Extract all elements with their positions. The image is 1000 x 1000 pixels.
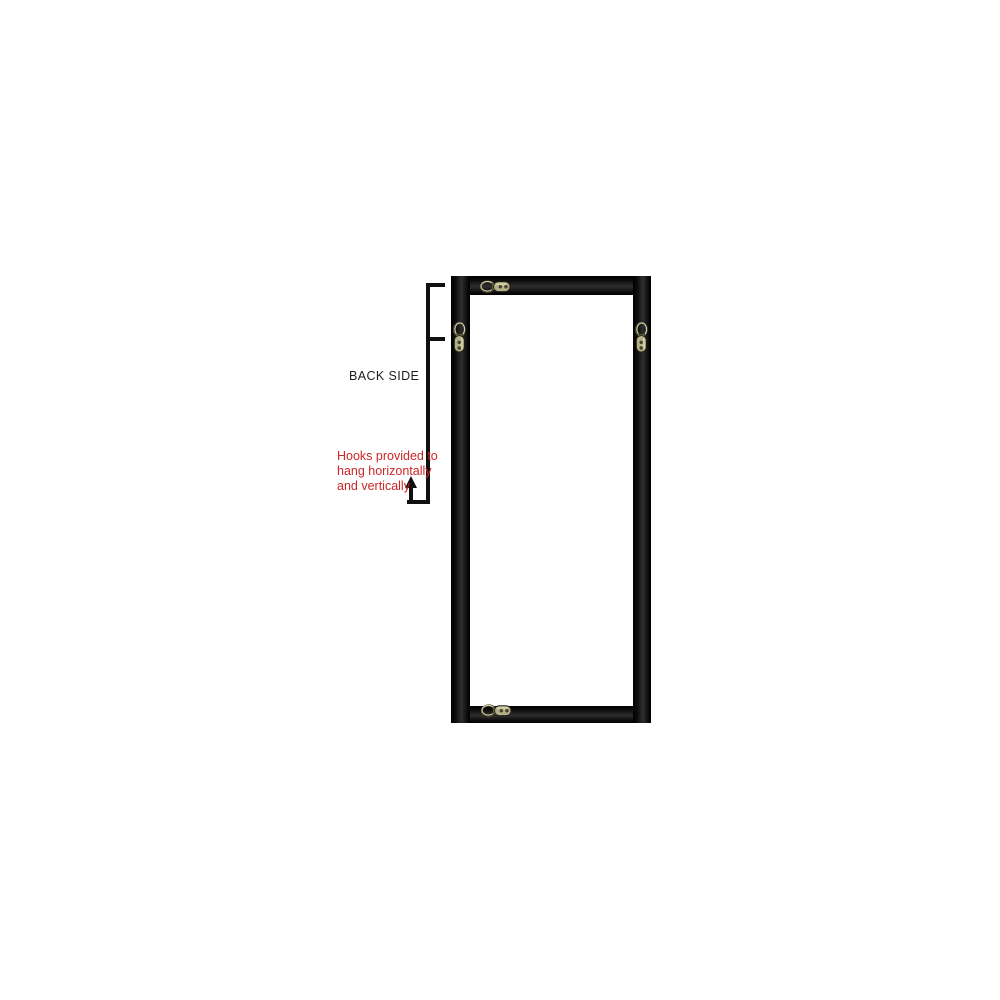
annotation-line-3: and vertically: [337, 479, 438, 494]
annotation-line-1: Hooks provided to: [337, 449, 438, 464]
frame-back: [451, 276, 651, 723]
annotation-line-2: hang horizontally: [337, 464, 438, 479]
bracket-tick-top: [426, 283, 445, 287]
hooks-annotation: Hooks provided to hang horizontally and …: [337, 449, 438, 494]
d-ring-hook-left-icon: [452, 322, 467, 353]
d-ring-hook-top-icon: [480, 279, 511, 294]
bracket-tick-middle: [426, 337, 445, 341]
d-ring-hook-bottom-icon: [481, 703, 512, 718]
back-side-label: BACK SIDE: [349, 369, 419, 383]
product-diagram: BACK SIDE Hooks provided to hang horizon…: [0, 0, 1000, 1000]
d-ring-hook-right-icon: [634, 322, 649, 353]
